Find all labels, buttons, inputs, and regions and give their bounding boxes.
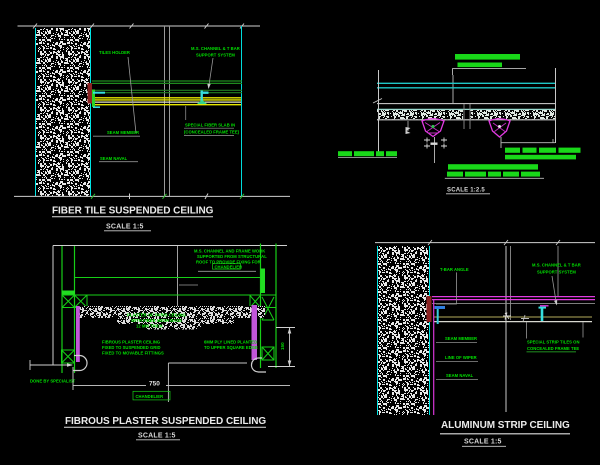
svg-text:FIXED TO MOVABLE FITTINGS: FIXED TO MOVABLE FITTINGS bbox=[102, 351, 164, 356]
svg-text:FIBER TILE SUSPENDED CEILING: FIBER TILE SUSPENDED CEILING bbox=[52, 206, 214, 217]
svg-text:TILES HOLDER: TILES HOLDER bbox=[99, 50, 130, 55]
svg-text:T-BAR ANGLE: T-BAR ANGLE bbox=[440, 267, 469, 272]
svg-text:(CONCEALED FRAME TEE): (CONCEALED FRAME TEE) bbox=[184, 130, 240, 135]
svg-text:DONE BY SPECIALIST: DONE BY SPECIALIST bbox=[30, 379, 76, 384]
svg-text:6MM PLY LINED PLANTED: 6MM PLY LINED PLANTED bbox=[204, 340, 257, 345]
svg-text:M.S. CHANNEL & T BAR: M.S. CHANNEL & T BAR bbox=[532, 263, 581, 268]
svg-text:SPECIAL STRIP TILES ON: SPECIAL STRIP TILES ON bbox=[527, 340, 579, 345]
svg-text:M.S. CHANNEL & T BAR: M.S. CHANNEL & T BAR bbox=[191, 46, 240, 51]
svg-text:FIBROUS PLASTER SUSPENDED CEIL: FIBROUS PLASTER SUSPENDED CEILING bbox=[65, 416, 266, 427]
svg-text:WITH FIBER MESH BASE: WITH FIBER MESH BASE bbox=[131, 318, 182, 323]
svg-text:LINE OF WIPER: LINE OF WIPER bbox=[445, 355, 477, 360]
svg-text:FIXED TO SUSPENDED GRID: FIXED TO SUSPENDED GRID bbox=[102, 345, 161, 350]
svg-text:SCALE 1:5: SCALE 1:5 bbox=[464, 439, 502, 446]
svg-text:SUPPORT SYSTEM: SUPPORT SYSTEM bbox=[537, 270, 576, 275]
svg-text:M.S. CHANNEL AND FRAME WORK: M.S. CHANNEL AND FRAME WORK bbox=[194, 249, 265, 254]
svg-text:SEAM NAVAL: SEAM NAVAL bbox=[100, 156, 128, 161]
svg-text:SCALE 1:5: SCALE 1:5 bbox=[106, 224, 144, 231]
svg-text:12 MM THICK: 12 MM THICK bbox=[136, 324, 163, 329]
svg-text:CONCEALED FRAME TEE: CONCEALED FRAME TEE bbox=[527, 346, 579, 351]
svg-text:SEAM NAVAL: SEAM NAVAL bbox=[446, 373, 474, 378]
svg-text:FIBROUS PLASTER CEILING: FIBROUS PLASTER CEILING bbox=[102, 340, 160, 345]
svg-text:SCALE 1:5: SCALE 1:5 bbox=[138, 433, 176, 440]
svg-text:CHANDELIER: CHANDELIER bbox=[136, 394, 164, 399]
svg-text:CHANDELIER: CHANDELIER bbox=[215, 264, 243, 269]
svg-text:ALUMINUM STRIP CEILING: ALUMINUM STRIP CEILING bbox=[441, 420, 570, 431]
svg-text:SUPPORT SYSTEM: SUPPORT SYSTEM bbox=[196, 53, 235, 58]
svg-text:SUPPORTED FROM STRUCTURAL: SUPPORTED FROM STRUCTURAL bbox=[197, 254, 267, 259]
svg-text:SCALE 1:2.5: SCALE 1:2.5 bbox=[447, 188, 485, 194]
svg-text:SEAM MEMBER: SEAM MEMBER bbox=[107, 130, 139, 135]
svg-text:750: 750 bbox=[149, 380, 160, 387]
svg-text:150: 150 bbox=[280, 342, 285, 350]
svg-text:SEAM MEMBER: SEAM MEMBER bbox=[445, 336, 477, 341]
svg-text:SPECIAL FIBER SLAB IN: SPECIAL FIBER SLAB IN bbox=[185, 123, 235, 128]
svg-text:PLASTER OF PARIS CEILING: PLASTER OF PARIS CEILING bbox=[127, 313, 186, 318]
svg-text:TO UPPER SQUARE EDGE: TO UPPER SQUARE EDGE bbox=[204, 345, 258, 350]
